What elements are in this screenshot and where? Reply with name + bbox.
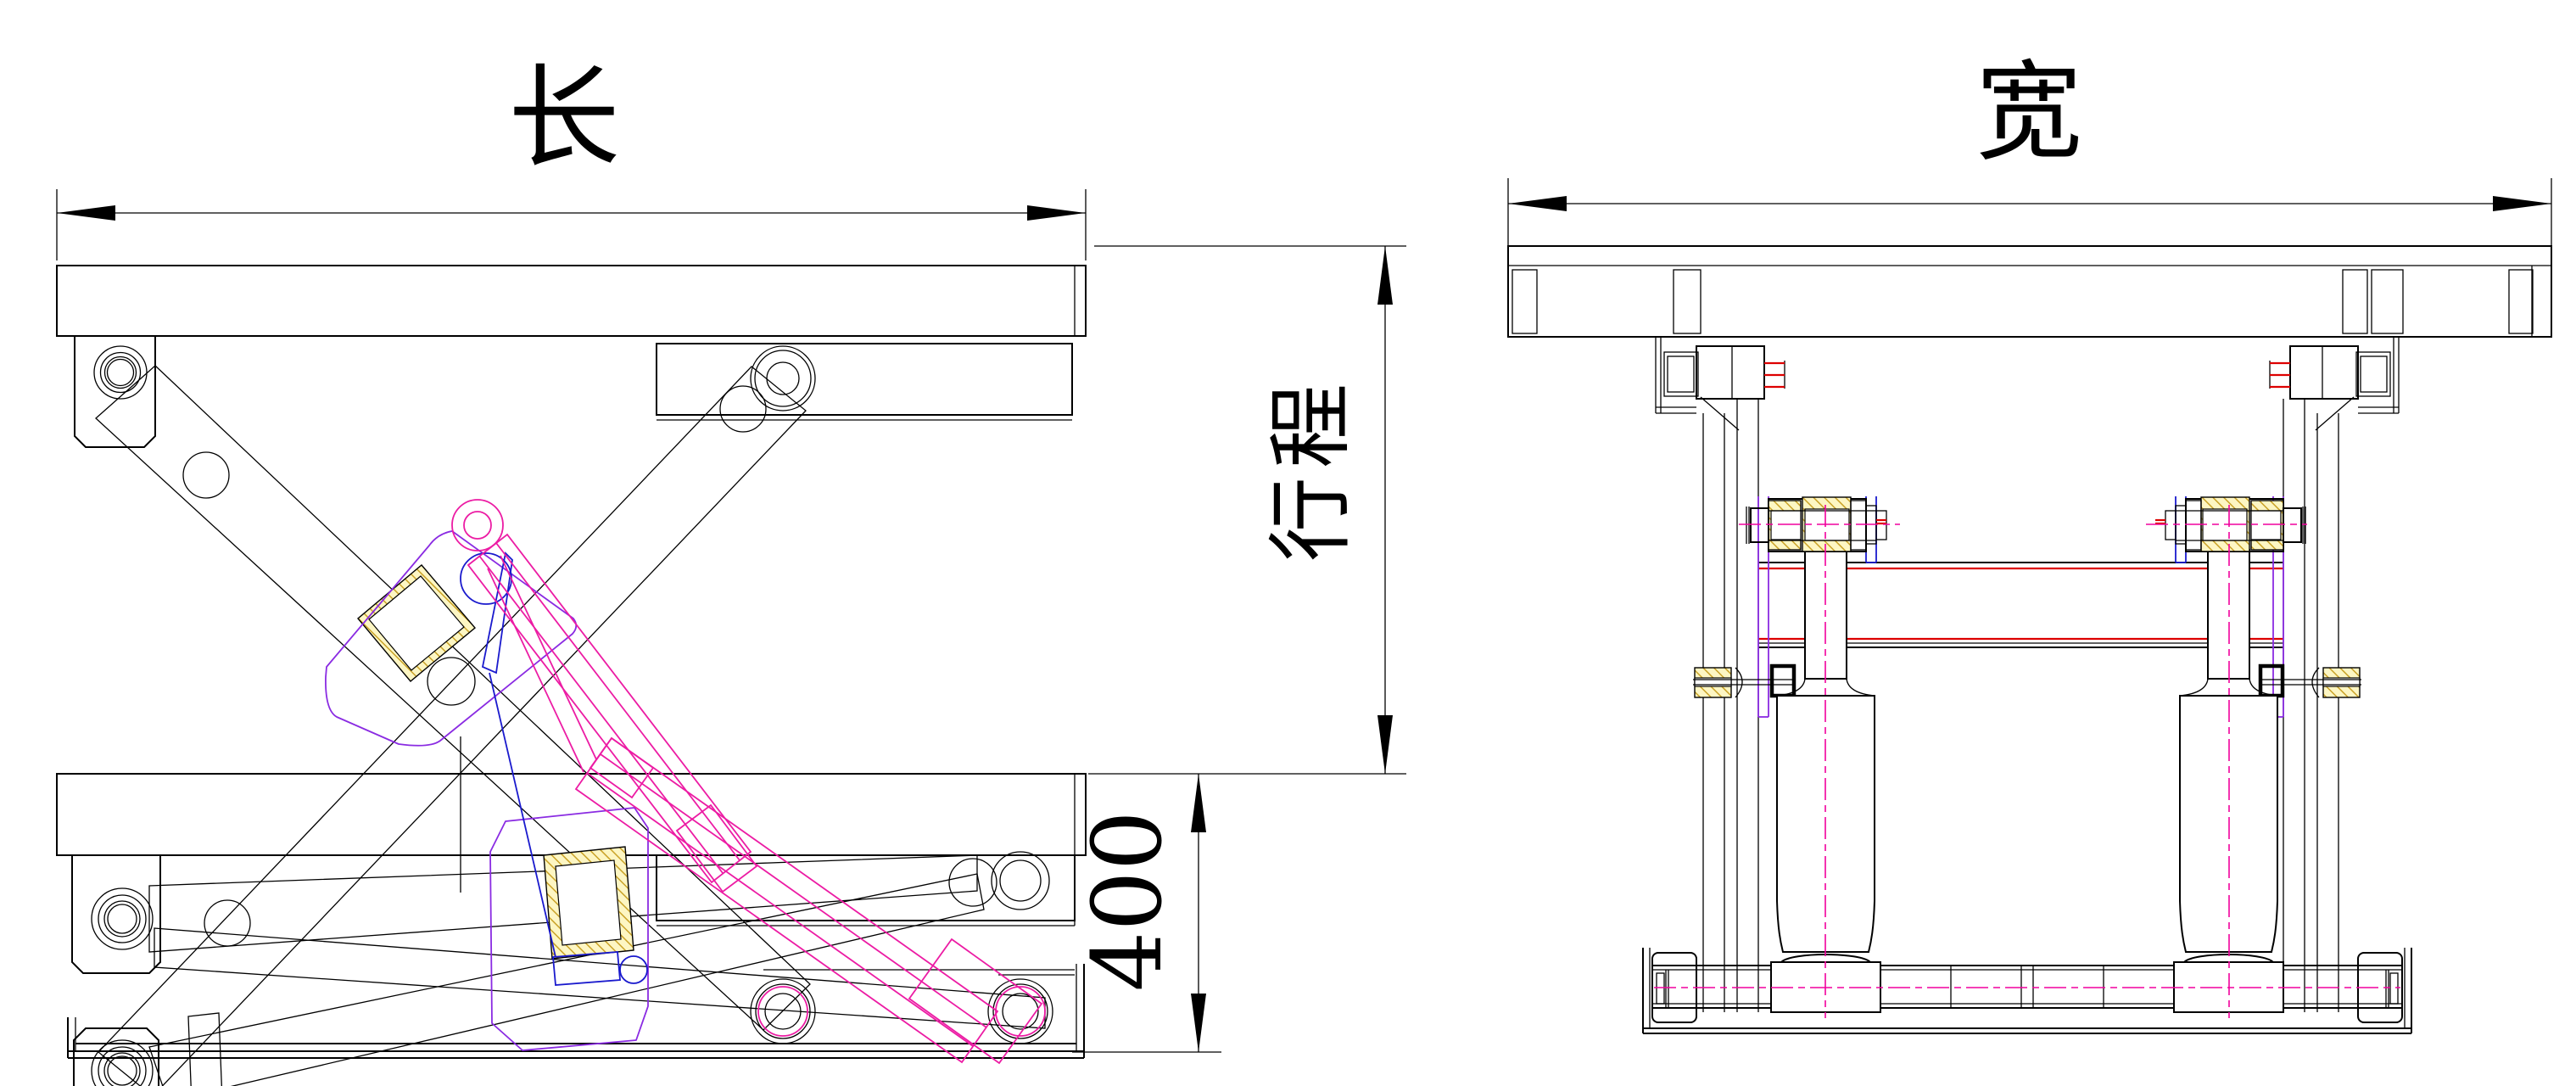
cylinder-overlay bbox=[452, 500, 1042, 1063]
arm-hole bbox=[204, 900, 250, 946]
scissor-arms-extended bbox=[96, 366, 810, 1086]
bottom-axle bbox=[1652, 966, 2402, 1008]
label-collapsed-height: 400 bbox=[1081, 810, 1176, 992]
cad-sheet: 长 宽 行程 400 bbox=[0, 0, 2576, 1086]
arrow-up-icon bbox=[1191, 774, 1206, 832]
roller-mid bbox=[949, 859, 997, 906]
roller-top bbox=[751, 346, 815, 411]
top-platform-extended bbox=[57, 266, 1086, 447]
arrow-down-icon bbox=[1377, 715, 1393, 774]
top-pivot-brackets bbox=[1656, 337, 2399, 430]
arm-hole bbox=[183, 452, 229, 498]
label-width: 宽 bbox=[1975, 59, 2082, 166]
side-view bbox=[57, 189, 1406, 1086]
arrow-down-icon bbox=[1191, 994, 1206, 1052]
centerlines bbox=[1654, 505, 2400, 1018]
cylinder-rods bbox=[1777, 550, 2277, 696]
arrow-left-icon bbox=[57, 205, 115, 221]
dim-length bbox=[57, 189, 1086, 260]
slide-rail-top bbox=[657, 344, 1072, 415]
dim-width bbox=[1508, 178, 2551, 249]
label-length: 长 bbox=[508, 63, 620, 175]
arrow-left-icon bbox=[1508, 196, 1567, 211]
upper-clamps bbox=[1739, 497, 2307, 551]
arrow-up-icon bbox=[1377, 246, 1393, 305]
lower-clamps bbox=[1693, 666, 2361, 697]
front-view bbox=[1508, 178, 2551, 1033]
arrow-right-icon bbox=[2493, 196, 2551, 211]
square-tube-sections bbox=[358, 565, 634, 959]
label-stroke: 行程 bbox=[1269, 375, 1354, 562]
arrow-right-icon bbox=[1027, 205, 1086, 221]
top-plate-front bbox=[1508, 246, 2551, 337]
